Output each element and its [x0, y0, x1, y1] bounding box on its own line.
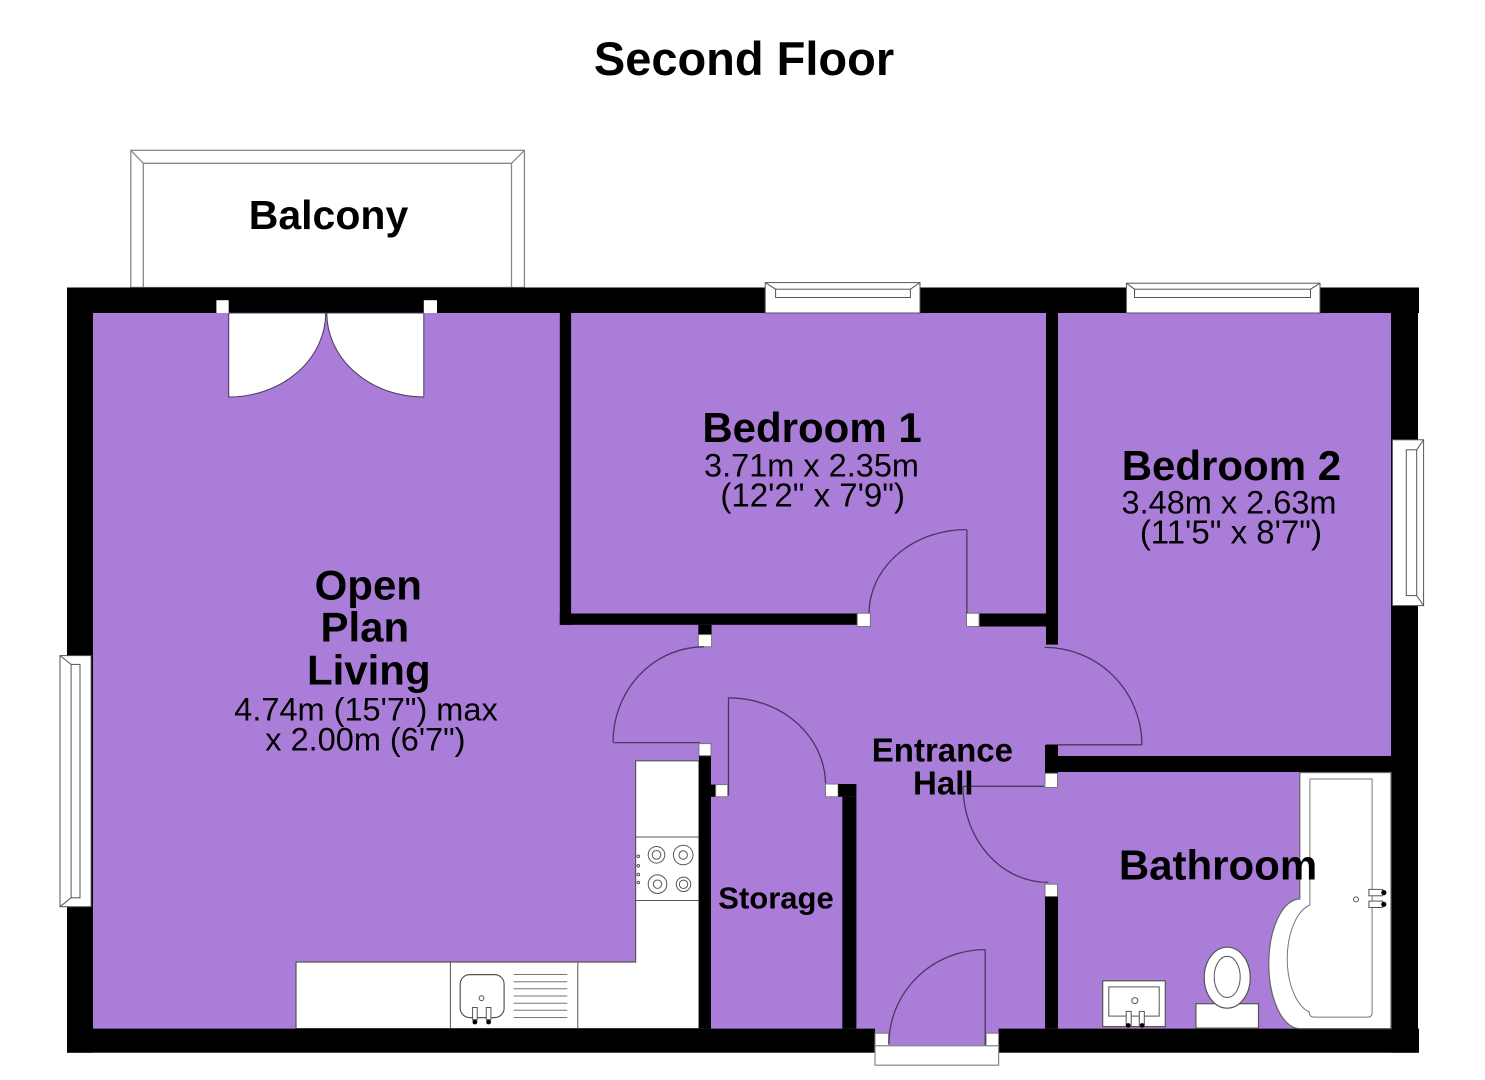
- svg-text:(11'5" x 8'7"): (11'5" x 8'7"): [1140, 514, 1322, 551]
- svg-text:Bedroom 2: Bedroom 2: [1122, 442, 1341, 489]
- svg-text:Bathroom: Bathroom: [1119, 842, 1317, 889]
- svg-text:Living: Living: [307, 647, 431, 694]
- svg-text:x 2.00m (6'7"): x 2.00m (6'7"): [265, 722, 465, 758]
- svg-text:Balcony: Balcony: [249, 192, 409, 238]
- svg-text:Open: Open: [315, 562, 422, 609]
- svg-text:(12'2" x 7'9"): (12'2" x 7'9"): [720, 476, 905, 513]
- svg-text:Hall: Hall: [913, 764, 974, 801]
- svg-text:Plan: Plan: [320, 604, 409, 651]
- svg-text:Bedroom 1: Bedroom 1: [702, 404, 921, 451]
- svg-text:Entrance: Entrance: [872, 732, 1013, 769]
- svg-text:Second Floor: Second Floor: [594, 32, 894, 85]
- svg-text:Storage: Storage: [718, 881, 833, 916]
